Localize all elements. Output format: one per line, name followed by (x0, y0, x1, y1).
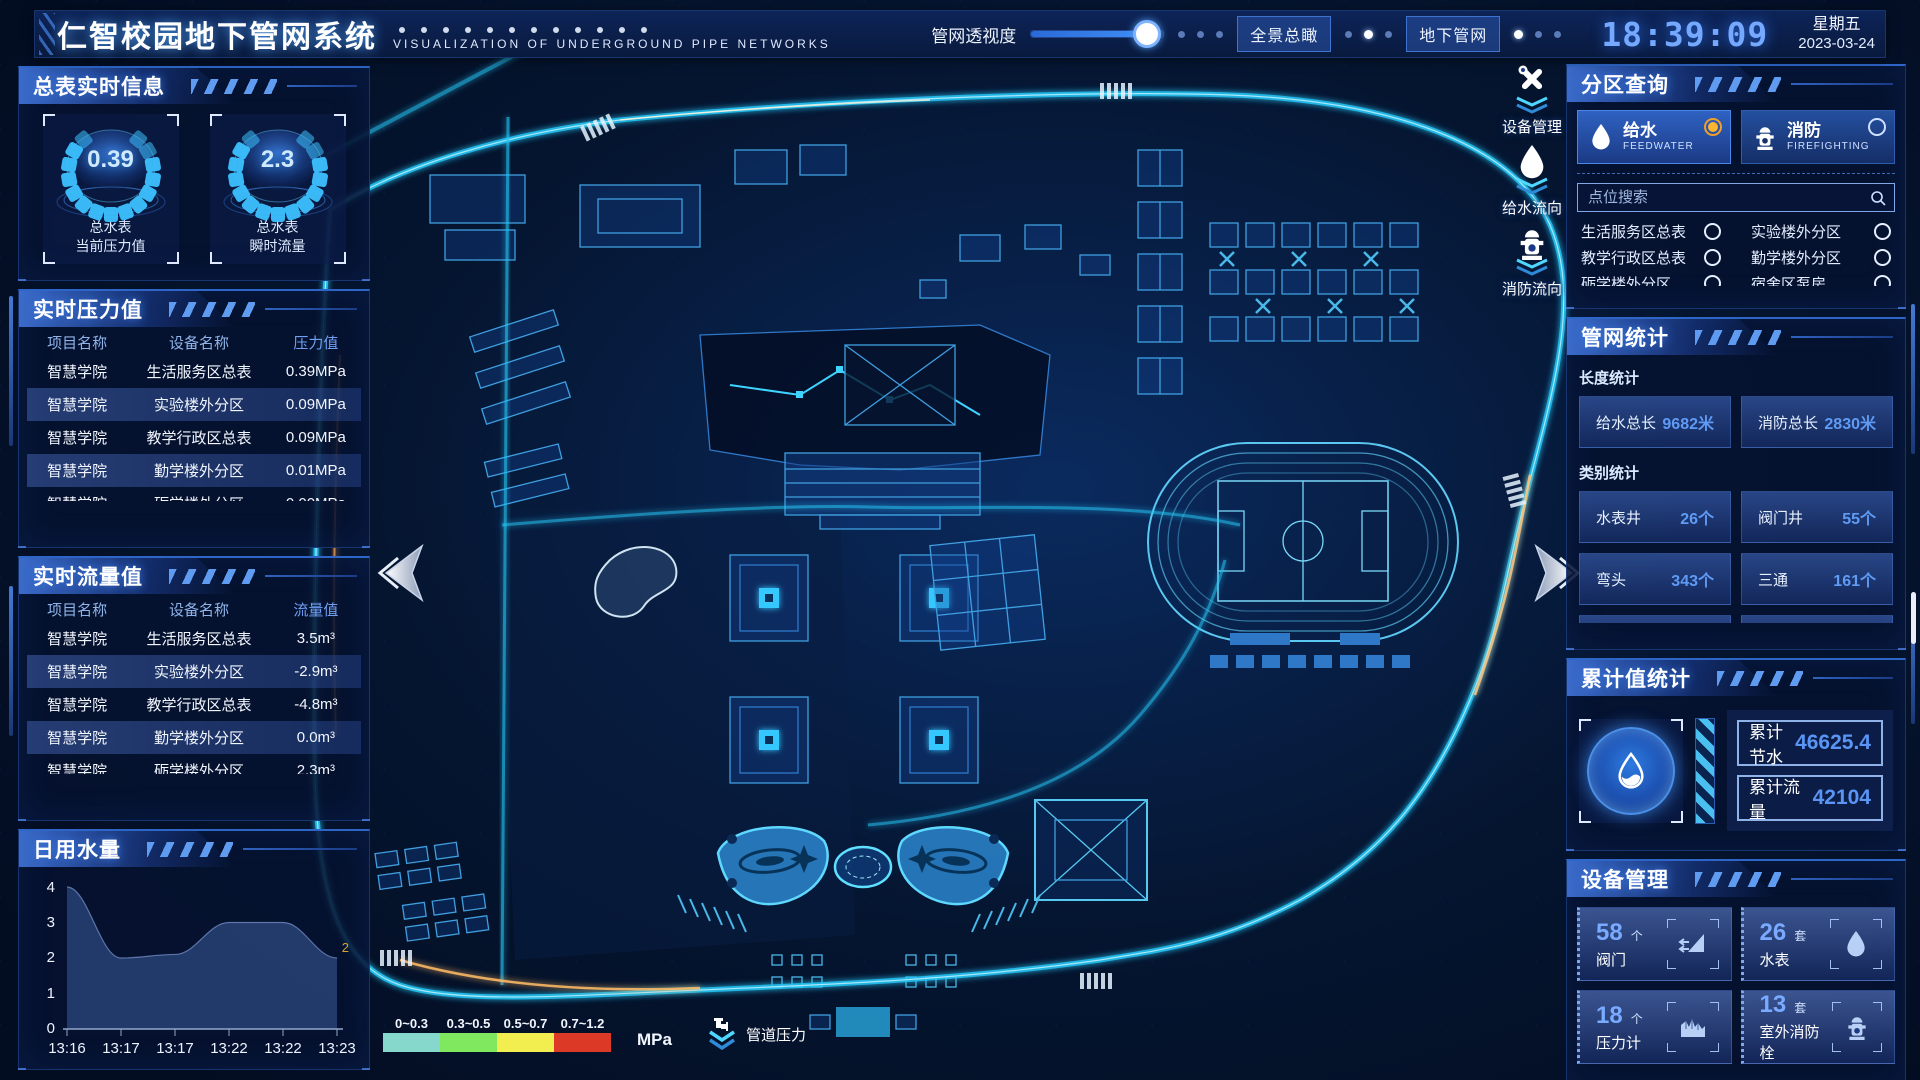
transparency-slider[interactable] (1030, 30, 1164, 38)
section-daily-water: 日用水量 4 3 2 1 0 13:16 13:17 (18, 829, 370, 1070)
stat-meter-wells: 水表井 26个 (1579, 491, 1731, 543)
slider-thumb[interactable] (1133, 20, 1161, 48)
header-dots-decoration (399, 27, 831, 33)
dormitory-blocks (1210, 223, 1418, 341)
toolbar-feedwater-flow[interactable]: 给水流向 (1502, 143, 1562, 218)
slash-decoration (169, 569, 255, 584)
dots-decoration (1178, 31, 1223, 38)
chevron-down-icon (1515, 96, 1549, 114)
stat-tees: 三通 161个 (1741, 553, 1893, 605)
table-row: 智慧学院砺学楼外分区2.3m³ (27, 754, 361, 774)
hatch-decoration (1695, 718, 1715, 824)
table-header: 项目名称 设备名称 压力值 (27, 329, 361, 355)
device-card-outdoor-hydrants[interactable]: 13套 室外消防栓 (1741, 990, 1896, 1064)
table-row: 智慧学院生活服务区总表0.39MPa (27, 355, 361, 388)
header-hatch-decoration (39, 13, 55, 55)
app-subtitle: VISUALIZATION OF UNDERGROUND PIPE NETWOR… (393, 37, 831, 51)
section-title: 设备管理 (1581, 864, 1669, 894)
section-title: 实时压力值 (33, 294, 143, 324)
gym-building (1035, 800, 1147, 900)
stat-valve-wells: 阀门井 55个 (1741, 491, 1893, 543)
tab-radio[interactable] (1868, 118, 1886, 136)
pipe-pressure-icon (706, 1016, 738, 1052)
search-input[interactable] (1586, 188, 1870, 207)
radio-icon[interactable] (1874, 249, 1891, 266)
dashed-divider (1577, 173, 1895, 174)
stat-clipped (1741, 615, 1893, 623)
legend-title: 管道压力 (746, 1024, 806, 1045)
device-card-meters[interactable]: 26套 水表 (1741, 907, 1896, 981)
section-title: 累计值统计 (1581, 663, 1691, 693)
pressure-table: 项目名称 设备名称 压力值 智慧学院生活服务区总表0.39MPa 智慧学院实验楼… (19, 327, 369, 501)
toolbar-fire-flow[interactable]: 消防流向 (1502, 224, 1562, 299)
section-title: 日用水量 (33, 834, 121, 864)
panel-rail-decoration (9, 296, 13, 446)
map-toolbar: 设备管理 给水流向 消防流向 (1492, 60, 1572, 299)
right-panel: 分区查询 给水 FEEDWATER (1566, 64, 1906, 1080)
zone-item[interactable]: 宿舍区泵房 (1747, 270, 1895, 286)
left-panel: 总表实时信息 0.39 总水表 (18, 66, 370, 1070)
outdoor-hydrant-icon (1832, 1002, 1882, 1052)
clock: 18:39:09 (1601, 15, 1768, 54)
length-stats-label: 长度统计 (1579, 367, 1893, 388)
section-zone-query: 分区查询 给水 FEEDWATER (1566, 64, 1906, 309)
table-row: 智慧学院砺学楼外分区0.00MPa (27, 487, 361, 501)
gauge-flow-card: 2.3 总水表 瞬时流量 (210, 114, 346, 264)
legend-segment: 0.7~1.2 (554, 1016, 611, 1052)
slash-decoration (191, 79, 277, 94)
slash-decoration (1695, 77, 1781, 92)
svg-text:2: 2 (47, 949, 55, 966)
device-card-valves[interactable]: 58个 阀门 (1577, 907, 1732, 981)
section-pipe-stats: 管网统计 长度统计 给水总长 9682米 消防总长 2830米 类别统计 (1566, 317, 1906, 650)
table-row: 智慧学院实验楼外分区0.09MPa (27, 388, 361, 421)
stat-fire-length: 消防总长 2830米 (1741, 396, 1893, 448)
device-card-pressure-gauges[interactable]: 18个 压力计 (1577, 990, 1732, 1064)
svg-text:3: 3 (47, 914, 55, 931)
slash-decoration (1695, 872, 1781, 887)
radio-icon[interactable] (1874, 275, 1891, 287)
tab-radio-selected[interactable] (1704, 118, 1722, 136)
svg-text:1: 1 (47, 985, 55, 1002)
tab-firefighting[interactable]: 消防 FIREFIGHTING (1741, 110, 1895, 164)
radio-icon[interactable] (1874, 223, 1891, 240)
flow-table: 项目名称 设备名称 流量值 智慧学院生活服务区总表3.5m³ 智慧学院实验楼外分… (19, 594, 369, 774)
table-row: 智慧学院勤学楼外分区0.01MPa (27, 454, 361, 487)
zone-item[interactable]: 砺学楼外分区 (1577, 270, 1725, 286)
toolbar-device-management[interactable]: 设备管理 (1502, 60, 1562, 137)
hydrant-icon (1515, 224, 1549, 262)
category-stats-label: 类别统计 (1579, 462, 1893, 483)
table-row: 智慧学院教学行政区总表0.09MPa (27, 421, 361, 454)
svg-text:2: 2 (342, 940, 349, 955)
legend-unit: MPa (637, 1030, 672, 1050)
table-row: 智慧学院生活服务区总表3.5m³ (27, 622, 361, 655)
zone-item[interactable]: 教学行政区总表 (1577, 244, 1725, 270)
water-drop-icon (1614, 752, 1648, 790)
slash-decoration (1717, 671, 1803, 686)
daily-water-chart: 4 3 2 1 0 13:16 13:17 13:17 13:22 13:22 … (19, 867, 369, 1068)
table-row: 智慧学院教学行政区总表-4.8m³ (27, 688, 361, 721)
panel-rail-decoration (1911, 304, 1915, 454)
cumulative-flow: 累计流量 42104 (1737, 775, 1883, 821)
svg-text:0: 0 (47, 1020, 55, 1037)
hydrant-icon (1752, 122, 1778, 152)
svg-text:13:17: 13:17 (102, 1040, 140, 1057)
date-display: 星期五 2023-03-24 (1798, 15, 1875, 54)
water-saving-icon-card (1579, 719, 1683, 823)
cumulative-water-saved: 累计节水 46625.4 (1737, 720, 1883, 766)
search-icon[interactable] (1870, 190, 1886, 206)
campus-map[interactable] (280, 55, 1580, 1080)
pressure-legend: 0~0.3 0.3~0.5 0.5~0.7 0.7~1.2 MPa 管道压力 (383, 1016, 806, 1052)
svg-text:13:22: 13:22 (210, 1040, 248, 1057)
gauge-pressure-card: 0.39 总水表 当前压力值 (43, 114, 179, 264)
gauge-value: 0.39 (51, 146, 171, 174)
water-drop-icon (1588, 122, 1614, 152)
tab-feedwater[interactable]: 给水 FEEDWATER (1577, 110, 1731, 164)
zone-item[interactable]: 生活服务区总表 (1577, 218, 1725, 244)
radio-icon[interactable] (1704, 223, 1721, 240)
legend-segment: 0~0.3 (383, 1016, 440, 1052)
section-title: 管网统计 (1581, 322, 1669, 352)
water-drop-icon (1515, 143, 1549, 181)
underground-pipes-button[interactable]: 地下管网 (1406, 16, 1500, 52)
dots-decoration (1514, 30, 1561, 39)
stat-feedwater-length: 给水总长 9682米 (1579, 396, 1731, 448)
svg-text:13:17: 13:17 (156, 1040, 194, 1057)
chevron-down-icon (1515, 258, 1549, 276)
section-cumulative: 累计值统计 累计节水 46625.4 (1566, 658, 1906, 851)
pressure-gauge-icon (1667, 1002, 1719, 1052)
zone-item-list: 生活服务区总表 实验楼外分区 教学行政区总表 勤学楼外分区 砺学楼外分区 宿舍区… (1577, 218, 1895, 286)
section-title: 总表实时信息 (33, 71, 165, 101)
stat-elbows: 弯头 343个 (1579, 553, 1731, 605)
table-row: 智慧学院勤学楼外分区0.0m³ (27, 721, 361, 754)
section-device-management: 设备管理 58个 阀门 26套 水表 (1566, 859, 1906, 1080)
wrench-icon (1511, 60, 1553, 100)
section-realtime-flow: 实时流量值 项目名称 设备名称 流量值 智慧学院生活服务区总表3.5m³ 智慧学… (18, 556, 370, 821)
water-meter-icon (1830, 919, 1882, 969)
slash-decoration (169, 302, 255, 317)
svg-text:13:23: 13:23 (318, 1040, 356, 1057)
radio-icon[interactable] (1704, 275, 1721, 287)
top-header: 仁智校园地下管网系统 VISUALIZATION OF UNDERGROUND … (34, 10, 1886, 58)
carousel-left-arrow[interactable] (372, 542, 430, 604)
legend-segment: 0.5~0.7 (497, 1016, 554, 1052)
slash-decoration (147, 842, 233, 857)
table-row: 智慧学院实验楼外分区-2.9m³ (27, 655, 361, 688)
app-title: 仁智校园地下管网系统 (57, 12, 377, 56)
chevron-down-icon (1515, 177, 1549, 195)
gauge-value: 2.3 (218, 146, 338, 174)
table-header: 项目名称 设备名称 流量值 (27, 596, 361, 622)
section-meter-info: 总表实时信息 0.39 总水表 (18, 66, 370, 281)
valve-icon (1667, 919, 1719, 969)
svg-text:4: 4 (47, 879, 55, 896)
slash-decoration (1695, 330, 1781, 345)
svg-text:13:22: 13:22 (264, 1040, 302, 1057)
dashboard-root: 设备管理 给水流向 消防流向 (0, 0, 1920, 1080)
overview-button[interactable]: 全景总瞰 (1237, 16, 1331, 52)
transparency-slider-label: 管网透视度 (931, 22, 1016, 47)
slider-fill (1031, 31, 1147, 37)
section-realtime-pressure: 实时压力值 项目名称 设备名称 压力值 智慧学院生活服务区总表0.39MPa 智… (18, 289, 370, 548)
point-search-box[interactable] (1577, 183, 1895, 212)
scrollbar-handle[interactable] (1911, 592, 1916, 644)
zone-item[interactable]: 勤学楼外分区 (1747, 244, 1895, 270)
legend-segment: 0.3~0.5 (440, 1016, 497, 1052)
section-title: 分区查询 (1581, 69, 1669, 99)
section-title: 实时流量值 (33, 561, 143, 591)
zone-item[interactable]: 实验楼外分区 (1747, 218, 1895, 244)
dots-decoration (1345, 30, 1392, 39)
svg-text:13:16: 13:16 (48, 1040, 86, 1057)
radio-icon[interactable] (1704, 249, 1721, 266)
stat-clipped (1579, 615, 1731, 623)
panel-rail-decoration (9, 586, 13, 736)
